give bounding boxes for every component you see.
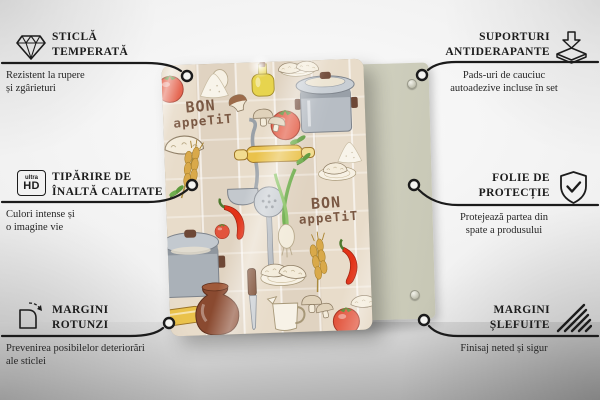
feature-desc-line: Rezistent la rupere — [6, 70, 85, 81]
stock-pot — [294, 71, 359, 133]
rounded-corner-icon — [16, 301, 44, 335]
feature-title-line: ROTUNZI — [52, 319, 108, 331]
feature-desc-line: spate a produsului — [466, 225, 542, 236]
glass-board: BON appeTiT — [161, 59, 372, 337]
screw-icon — [410, 290, 420, 300]
sparkle-highlight — [246, 52, 274, 80]
feature-desc-line: și zgârieturi — [6, 83, 56, 94]
feature-desc-line: Prevenirea posibilelor deteriorări — [6, 343, 145, 354]
feature-desc-line: Culori intense și — [6, 209, 75, 220]
feature-desc-line: Pads-uri de cauciuc — [463, 70, 545, 81]
feature-desc-line: autoadezive incluse în set — [450, 83, 558, 94]
feature-title-line: SUPORTURI — [479, 31, 550, 43]
feature-title-line: STICLĂ — [52, 31, 97, 43]
feature-title-line: FOLIE DE — [492, 172, 550, 184]
feature-title-line: ANTIDERAPANTE — [445, 46, 550, 58]
feature-desc-line: Protejează partea din — [460, 212, 548, 223]
anti-slip-pads-icon — [553, 31, 590, 69]
ultra-hd-icon: ultra HD — [17, 170, 46, 196]
ultra-hd-icon-text: HD — [23, 181, 40, 192]
feature-title-line: TIPĂRIRE DE — [52, 171, 131, 183]
diamond-icon — [16, 34, 46, 66]
polished-edge-icon — [554, 302, 592, 338]
feature-desc-line: o imagine vie — [6, 222, 63, 233]
feature-title-line: ÎNALTĂ CALITATE — [52, 186, 163, 198]
feature-desc-line: ale sticlei — [6, 356, 46, 367]
feature-title-line: MARGINI — [52, 304, 108, 316]
kitchen-pattern-print: BON appeTiT — [161, 59, 372, 337]
feature-title-line: PROTECȚIE — [479, 187, 550, 199]
shield-check-icon — [557, 170, 590, 210]
feature-desc-line: Finisaj neted și sigur — [460, 343, 547, 354]
feature-title-line: ȘLEFUITE — [490, 319, 550, 331]
feature-title-line: TEMPERATĂ — [52, 46, 128, 58]
feature-title-line: MARGINI — [494, 304, 550, 316]
